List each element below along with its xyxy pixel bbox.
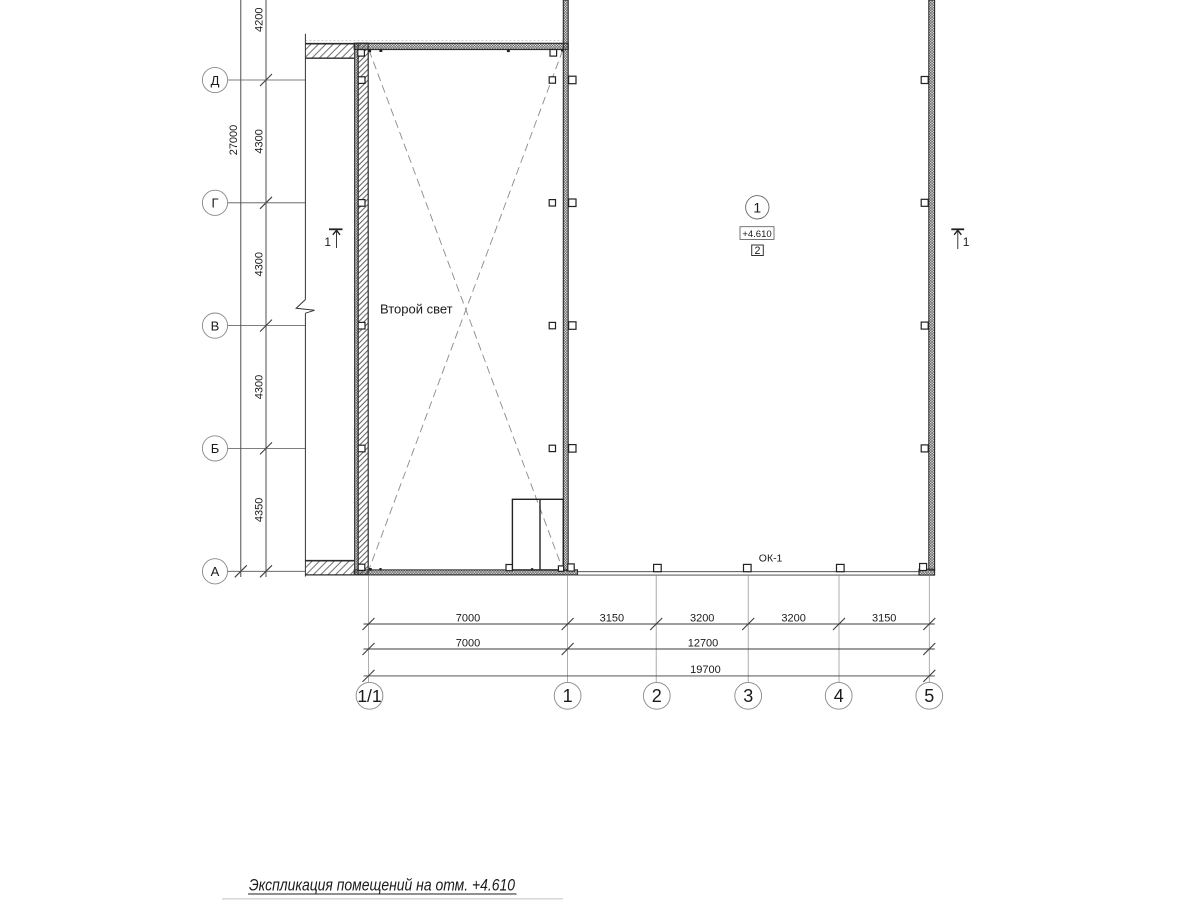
- svg-text:12700: 12700: [688, 638, 719, 650]
- svg-text:ОК-1: ОК-1: [759, 553, 783, 565]
- svg-text:4300: 4300: [254, 129, 266, 153]
- svg-text:1: 1: [563, 686, 573, 706]
- svg-text:1: 1: [963, 235, 970, 249]
- svg-text:4300: 4300: [254, 252, 266, 276]
- svg-text:4200: 4200: [254, 7, 266, 31]
- svg-text:В: В: [211, 318, 220, 333]
- svg-text:7000: 7000: [456, 612, 480, 624]
- svg-text:3150: 3150: [872, 612, 896, 624]
- svg-text:1/1: 1/1: [357, 686, 381, 706]
- svg-text:4: 4: [834, 686, 844, 706]
- svg-text:Г: Г: [211, 196, 218, 211]
- svg-text:+4.610: +4.610: [742, 229, 771, 240]
- svg-text:3150: 3150: [600, 612, 624, 624]
- svg-text:А: А: [211, 564, 220, 579]
- svg-text:2: 2: [652, 686, 662, 706]
- svg-text:3200: 3200: [690, 612, 714, 624]
- svg-text:Экспликация помещений на отм.: Экспликация помещений на отм. +4.610: [249, 877, 515, 895]
- svg-text:7000: 7000: [456, 638, 480, 650]
- svg-text:27000: 27000: [228, 125, 240, 156]
- svg-text:3200: 3200: [781, 612, 805, 624]
- svg-text:4350: 4350: [254, 498, 266, 522]
- svg-text:1: 1: [753, 199, 761, 215]
- svg-text:Б: Б: [211, 441, 220, 456]
- svg-text:Д: Д: [211, 73, 220, 88]
- svg-text:2: 2: [755, 245, 761, 257]
- svg-text:19700: 19700: [690, 664, 721, 676]
- svg-text:Второй свет: Второй свет: [380, 302, 453, 317]
- svg-text:5: 5: [924, 686, 934, 706]
- svg-text:3: 3: [743, 686, 753, 706]
- svg-text:4300: 4300: [254, 375, 266, 399]
- svg-text:1: 1: [324, 235, 331, 249]
